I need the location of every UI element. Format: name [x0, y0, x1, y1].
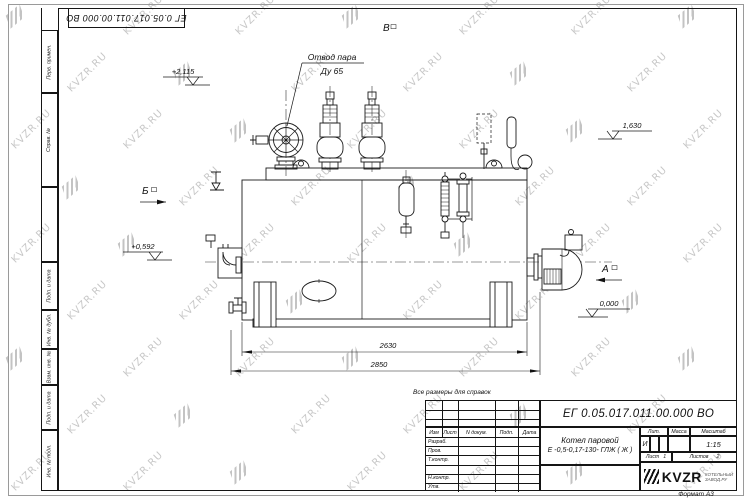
elevation-1: +2,115 — [172, 67, 195, 76]
col-podp: Подп. — [495, 428, 518, 437]
col-data: Дата — [518, 428, 541, 437]
title-block-spare-grid — [425, 400, 540, 427]
view-label-v: В — [383, 23, 390, 34]
title-doc-number-cell: ЕГ 0.05.017.011.00.000 ВО — [540, 400, 737, 427]
title-doc-number: ЕГ 0.05.017.011.00.000 ВО — [563, 408, 714, 420]
logo-cell: KVZR КОТЕЛЬНЫЙ ЗАВОД.РУ — [640, 462, 737, 491]
massa-header: Масса — [668, 427, 690, 436]
lit-value: И — [642, 441, 647, 448]
masshtab-header: Масштаб — [690, 427, 737, 436]
elevation-2: 1,630 — [623, 121, 643, 130]
lifting-lugs — [293, 160, 502, 168]
elevation-4: 0,000 — [600, 299, 620, 308]
scale-cell: 1:15 — [690, 436, 737, 452]
drawing-sheet: KVZR.RUKVZR.RUKVZR.RUKVZR.RUKVZR.RUKVZR.… — [0, 0, 750, 500]
separator-column — [399, 177, 414, 233]
material-cell-empty — [540, 465, 640, 491]
base-frame — [253, 282, 512, 327]
view-label-a: А — [601, 264, 609, 275]
kvzr-logo-icon — [644, 469, 659, 484]
col-izm: Изм — [426, 428, 442, 437]
product-name-line1: Котел паровой — [541, 436, 639, 445]
row-nkontr: Н.контр. — [428, 475, 450, 481]
elevation-3: +0,592 — [131, 242, 155, 251]
col-ndokum: N докум. — [458, 428, 495, 437]
callout-line2: Ду 65 — [320, 66, 343, 76]
boiler-shell — [242, 168, 527, 320]
title-block-left-section: Изм Лист N докум. Подп. Дата Разраб. Про… — [425, 427, 540, 491]
product-name-line2: Е -0,5-0,17-130- ГЛЖ ( Ж ) — [541, 447, 639, 454]
manhole — [302, 279, 336, 303]
reference-note: Все размеры для справок — [413, 388, 492, 396]
water-level-gauge — [441, 172, 472, 238]
massa-cell — [668, 436, 690, 452]
dim-2850: 2850 — [370, 360, 389, 369]
row-tkontr: Т.контр. — [428, 457, 449, 463]
format-label: Формат А3 — [655, 491, 737, 498]
sheets-cell: Листов 2 — [672, 452, 737, 462]
dim-2630: 2630 — [379, 341, 398, 350]
sheet-cell: Лист 1 — [640, 452, 672, 462]
row-razrab: Разраб. — [428, 439, 447, 445]
callout-line1: Отвод пара — [308, 52, 357, 62]
top-right-fittings — [477, 114, 532, 170]
row-utv: Утв. — [428, 484, 440, 490]
view-label-b: Б — [142, 186, 149, 197]
lit-cell-3 — [659, 436, 668, 452]
lit-cell-1: И — [640, 436, 650, 452]
lit-cell-2 — [650, 436, 659, 452]
kvzr-logo-text: KVZR — [662, 469, 702, 485]
scale-value: 1:15 — [706, 440, 721, 449]
product-name-cell: Котел паровой Е -0,5-0,17-130- ГЛЖ ( Ж ) — [540, 427, 640, 465]
lit-header: Лит. — [640, 427, 668, 436]
left-side-equipment — [206, 172, 246, 313]
burner-unit — [527, 230, 582, 291]
col-list: Лист — [442, 428, 458, 437]
row-prov: Пров. — [428, 448, 442, 454]
